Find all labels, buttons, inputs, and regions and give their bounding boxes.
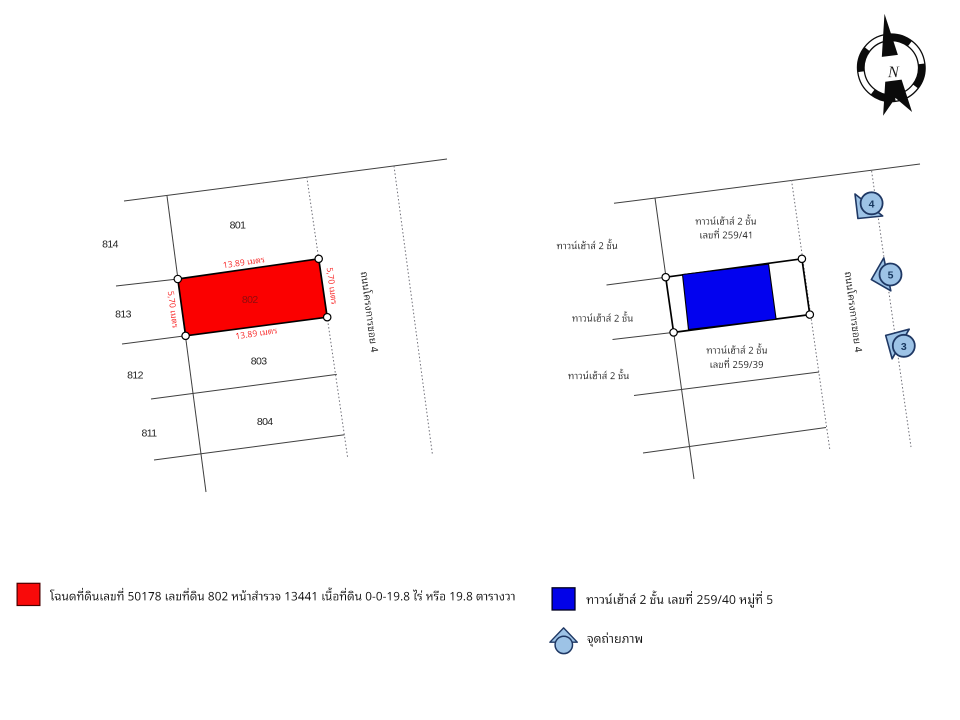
svg-text:812: 812	[127, 370, 143, 382]
svg-text:801: 801	[230, 220, 246, 232]
svg-text:813: 813	[115, 309, 131, 321]
svg-text:802: 802	[242, 294, 258, 306]
svg-text:814: 814	[102, 239, 118, 251]
svg-text:811: 811	[142, 428, 158, 440]
svg-text:3: 3	[901, 341, 907, 353]
svg-text:4: 4	[869, 198, 875, 210]
svg-text:803: 803	[251, 356, 267, 368]
svg-text:804: 804	[257, 416, 273, 428]
svg-text:5: 5	[888, 270, 894, 282]
